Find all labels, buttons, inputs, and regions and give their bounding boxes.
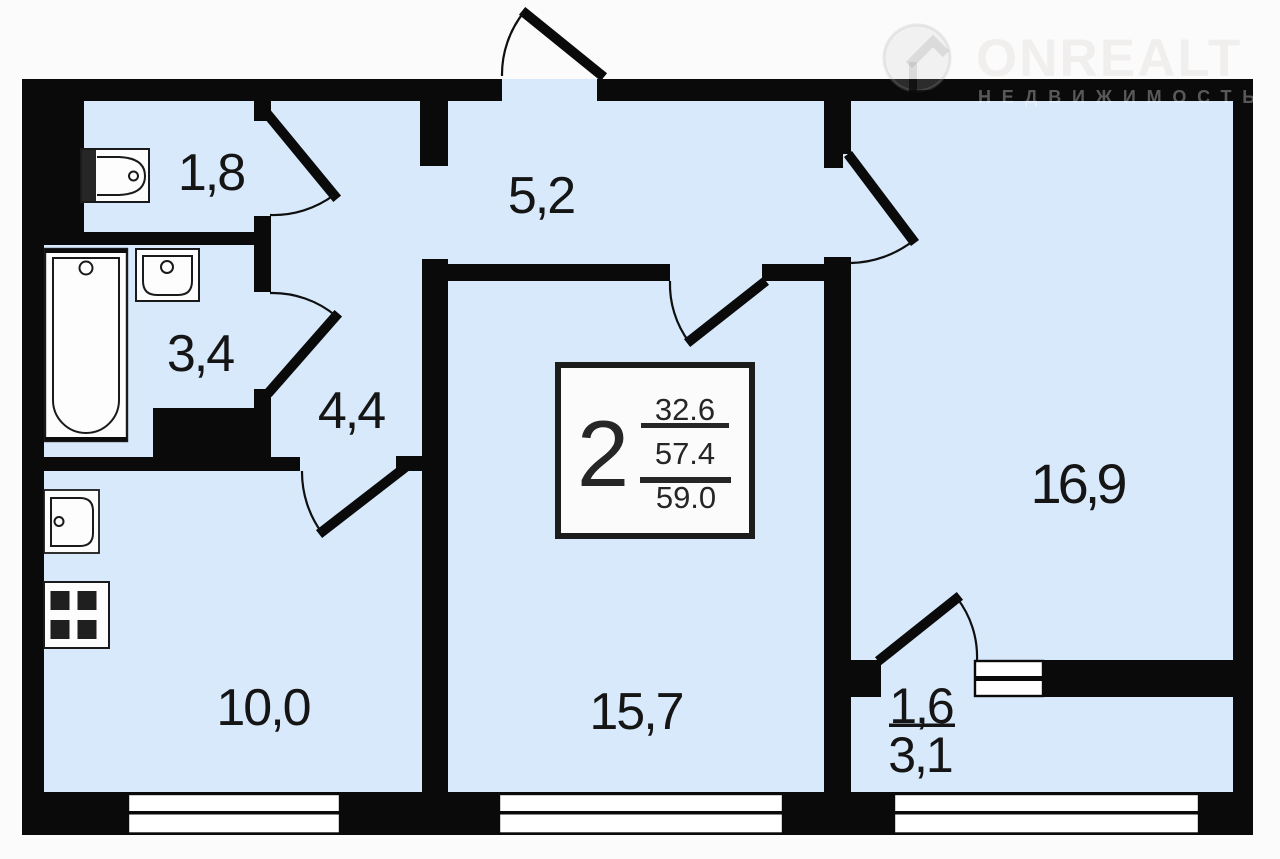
svg-text:10,0: 10,0 xyxy=(216,679,309,737)
svg-text:3,1: 3,1 xyxy=(888,727,952,783)
svg-text:32.6: 32.6 xyxy=(655,392,715,427)
svg-text:15,7: 15,7 xyxy=(589,683,682,741)
svg-text:2: 2 xyxy=(577,401,629,506)
svg-text:3,4: 3,4 xyxy=(167,325,234,383)
svg-text:1,8: 1,8 xyxy=(178,144,244,202)
svg-text:НЕДВИЖИМОСТЬ: НЕДВИЖИМОСТЬ xyxy=(978,87,1266,107)
svg-text:59.0: 59.0 xyxy=(656,480,716,515)
svg-text:16,9: 16,9 xyxy=(1031,452,1126,515)
svg-text:57.4: 57.4 xyxy=(655,436,715,471)
svg-text:ONREALT: ONREALT xyxy=(976,29,1242,88)
svg-text:4,4: 4,4 xyxy=(318,382,385,440)
svg-text:5,2: 5,2 xyxy=(508,167,574,225)
